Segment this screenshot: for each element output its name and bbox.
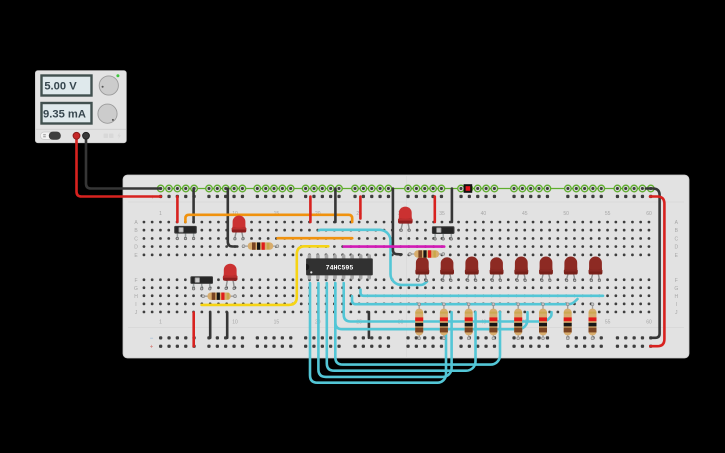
svg-text:G: G	[134, 286, 138, 292]
svg-text:H: H	[674, 294, 678, 300]
svg-text:55: 55	[605, 211, 611, 217]
svg-text:D: D	[674, 245, 678, 251]
svg-text:D: D	[134, 245, 138, 251]
svg-text:C: C	[674, 236, 678, 242]
svg-text:G: G	[674, 286, 678, 292]
svg-text:60: 60	[646, 320, 652, 326]
svg-text:9.35 mA: 9.35 mA	[43, 109, 86, 121]
svg-text:60: 60	[646, 211, 652, 217]
svg-text:+: +	[150, 345, 154, 351]
svg-text:H: H	[134, 294, 138, 300]
svg-text:10: 10	[232, 320, 238, 326]
svg-text:55: 55	[605, 320, 611, 326]
svg-text:40: 40	[481, 211, 487, 217]
svg-text:I: I	[676, 302, 677, 308]
svg-text:−: −	[150, 336, 154, 342]
svg-text:45: 45	[522, 211, 528, 217]
svg-text:1: 1	[159, 320, 162, 326]
svg-text:F: F	[675, 278, 678, 284]
svg-text:C: C	[134, 236, 138, 242]
svg-text:50: 50	[563, 211, 569, 217]
svg-text:I: I	[135, 302, 136, 308]
svg-text:5.00 V: 5.00 V	[44, 81, 77, 93]
svg-text:15: 15	[274, 320, 280, 326]
svg-text:74HC595: 74HC595	[326, 265, 354, 272]
svg-text:F: F	[134, 278, 137, 284]
svg-text:1: 1	[159, 211, 162, 217]
svg-text:35: 35	[439, 211, 445, 217]
